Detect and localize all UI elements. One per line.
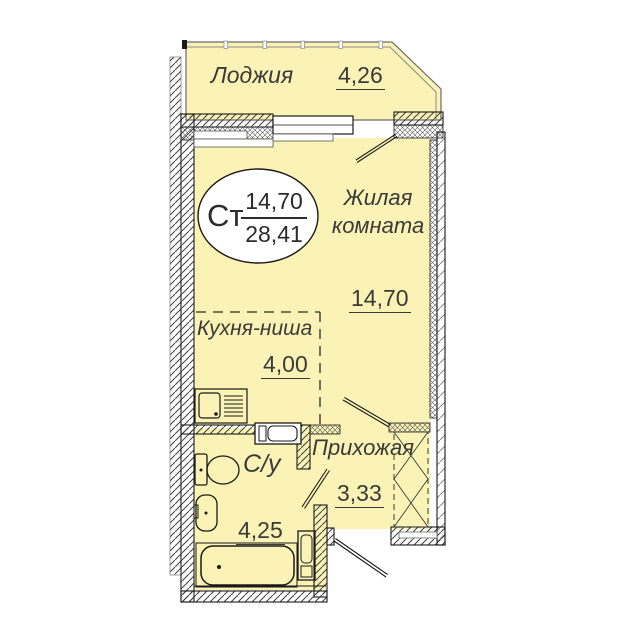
living-room-area: 14,70 [349, 287, 411, 313]
glazing-mullion-icon [224, 41, 228, 49]
entrance-door-swing [334, 539, 388, 578]
bottom-right-wall-notch [399, 532, 437, 538]
neighbor-wall [170, 57, 181, 575]
floor-plan: Лоджия 4,26 Ст 14,70 28,41 Жилая комната… [0, 0, 624, 624]
living-room-label-line1: Жилая [344, 185, 413, 210]
stamp-total-area: 28,41 [241, 219, 307, 248]
radiator-niche [194, 131, 247, 139]
entrance-jamb [327, 528, 334, 545]
hallway-area-value: 3,33 [335, 482, 384, 508]
stamp-living-area: 14,70 [241, 188, 307, 219]
hall-top-wall [310, 425, 340, 434]
living-room-label-line2: комната [332, 213, 424, 238]
exterior-wall [181, 114, 273, 127]
bathroom-label: С/у [243, 452, 281, 477]
hallway-area: 3,33 [335, 482, 384, 508]
glazing-mullion-icon [339, 41, 343, 49]
stamp-areas: 14,70 28,41 [241, 188, 307, 248]
bottom-wall [181, 591, 327, 602]
floor-plan-drawing [0, 0, 624, 624]
right-wall-insulation [430, 140, 437, 418]
washing-machine-icon [255, 423, 301, 444]
wall-end-cap [182, 40, 187, 49]
bathroom-right-wall [314, 505, 327, 597]
hallway-label: Прихожая [312, 437, 414, 459]
glazing-mullion-icon [379, 41, 383, 49]
kitchen-niche-label: Кухня-ниша [197, 318, 312, 339]
window-sill [273, 134, 333, 141]
stamp-apartment-type: Ст [207, 198, 244, 234]
left-wall [181, 114, 194, 602]
bathroom-area: 4,25 [236, 519, 285, 545]
glazing-mullion-icon [263, 41, 267, 49]
loggia-label: Лоджия [211, 64, 293, 87]
exterior-wall-insulation [394, 125, 443, 138]
kitchen-bath-wall [181, 425, 255, 434]
radiator-niche [194, 139, 273, 147]
living-room-label: Жилая комната [326, 184, 430, 240]
glazing-mullion-icon [301, 41, 305, 49]
kitchen-niche-area-value: 4,00 [261, 353, 310, 379]
living-room-area-value: 14,70 [349, 287, 411, 313]
loggia-area: 4,26 [336, 64, 385, 90]
wardrobe-top-wall [389, 423, 430, 432]
kitchen-niche-area: 4,00 [261, 353, 310, 379]
exterior-wall [394, 112, 443, 125]
loggia-area-value: 4,26 [336, 64, 385, 90]
bathroom-area-value: 4,25 [236, 519, 285, 545]
sink-drain-icon [214, 412, 218, 416]
right-wall [437, 132, 445, 545]
